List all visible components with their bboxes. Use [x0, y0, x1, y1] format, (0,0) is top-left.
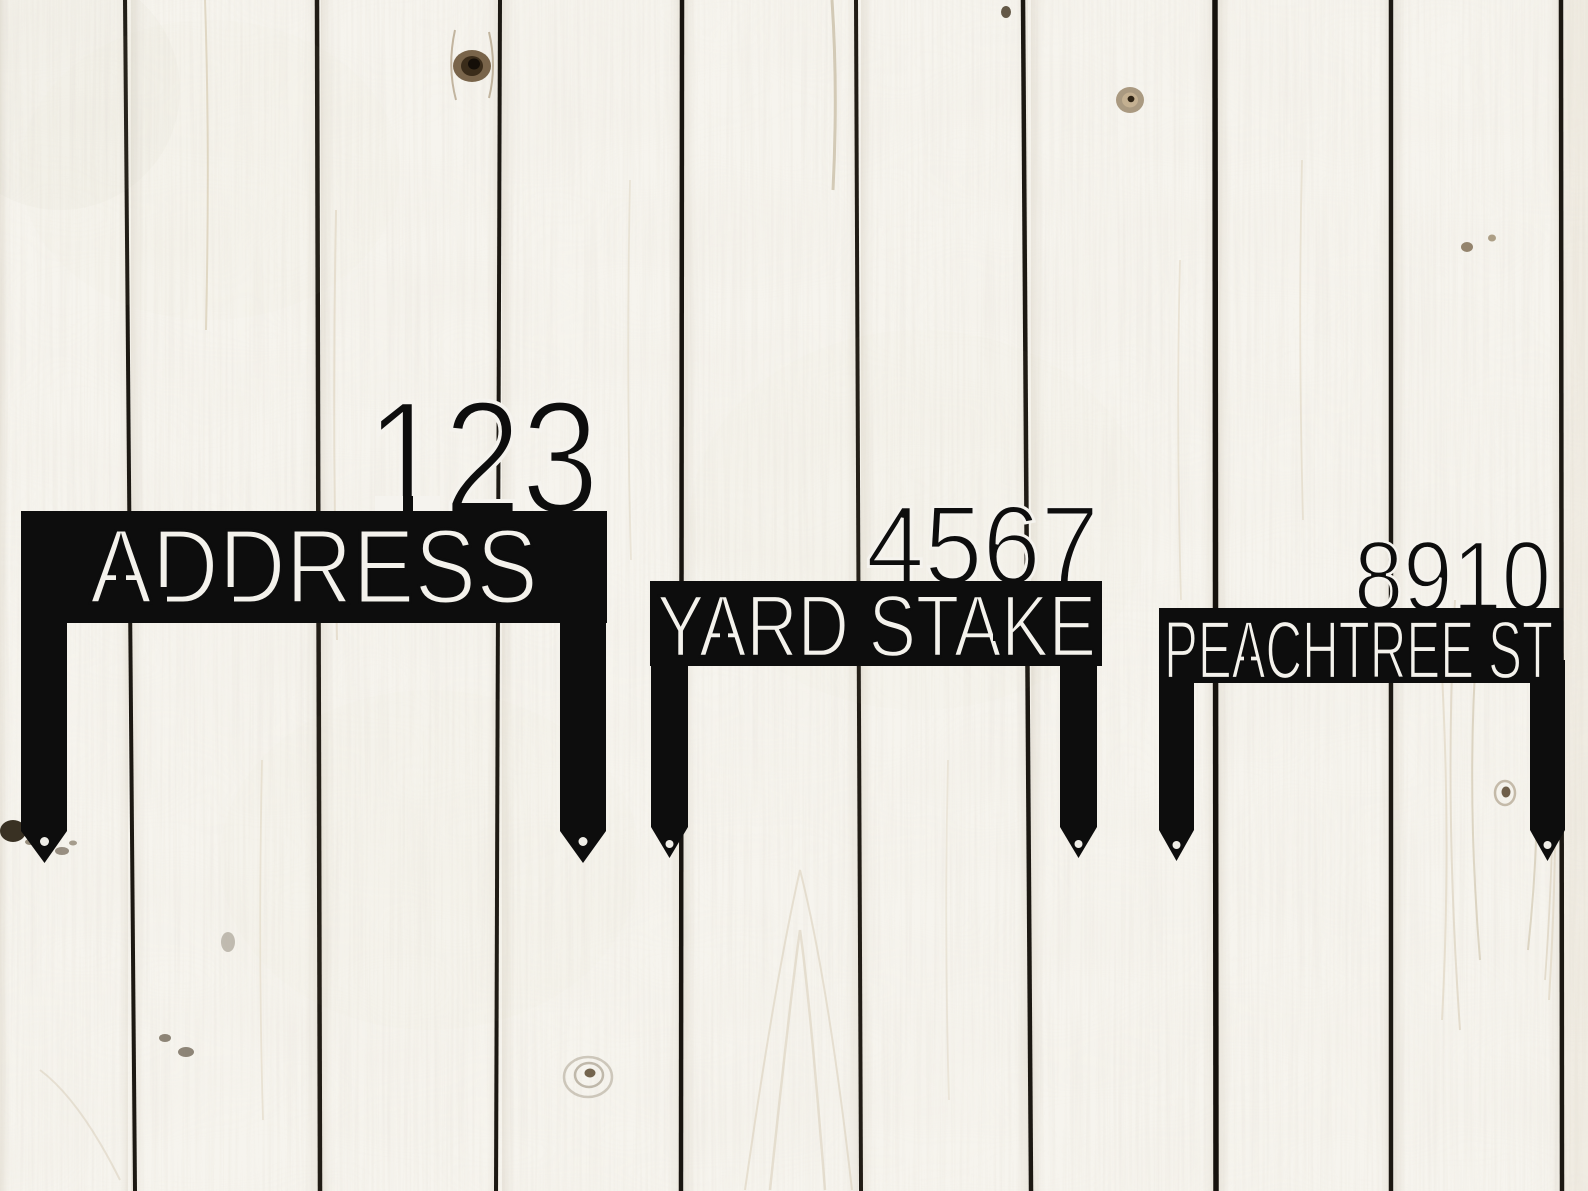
svg-text:PEACHTREE ST: PEACHTREE ST — [1164, 605, 1553, 696]
svg-text:YARD STAKE: YARD STAKE — [657, 578, 1096, 675]
svg-text:ADDRESS: ADDRESS — [90, 508, 538, 626]
